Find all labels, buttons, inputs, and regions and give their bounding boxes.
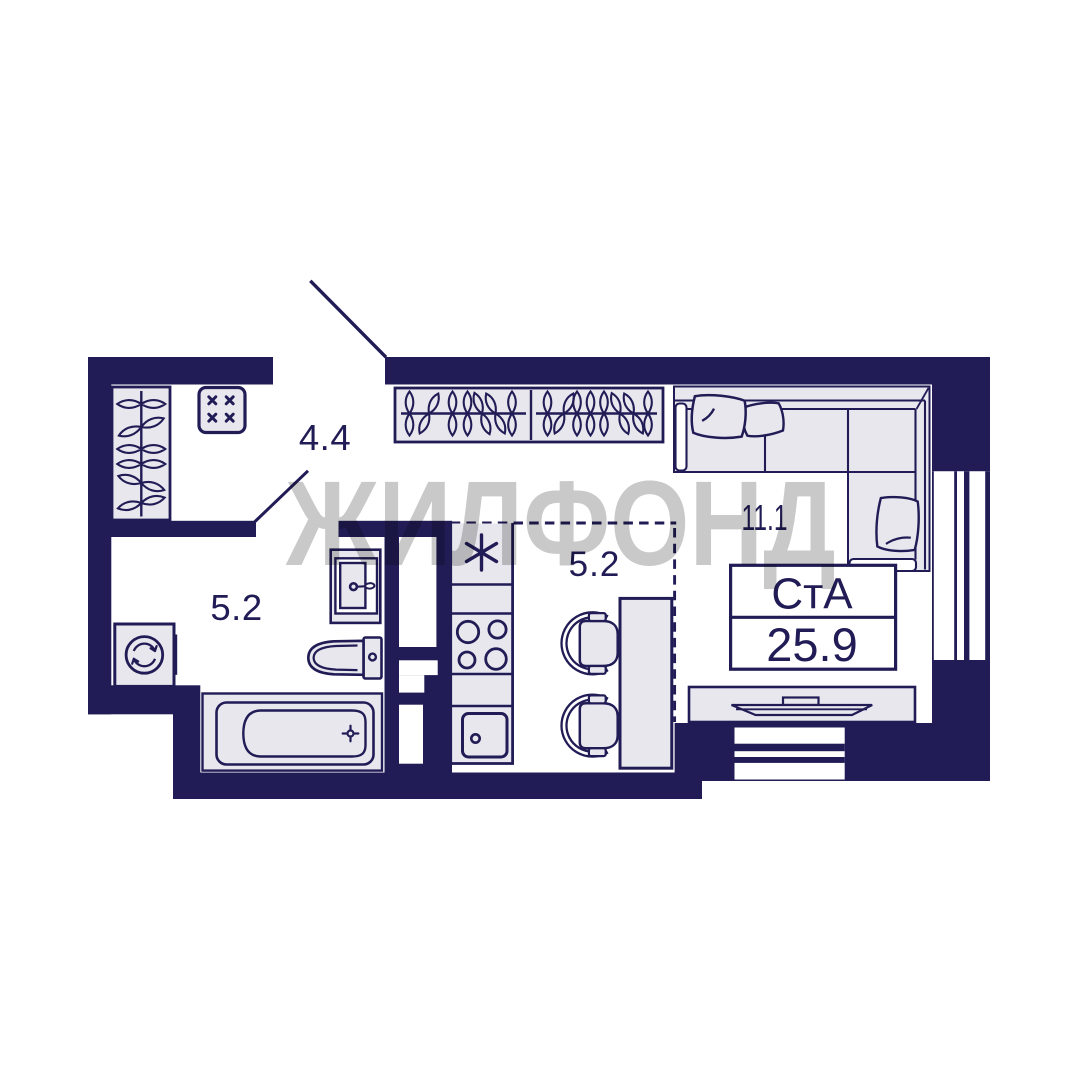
svg-text:25.9: 25.9 (766, 618, 857, 671)
svg-text:5.2: 5.2 (210, 587, 262, 628)
svg-text:4.4: 4.4 (299, 417, 351, 458)
